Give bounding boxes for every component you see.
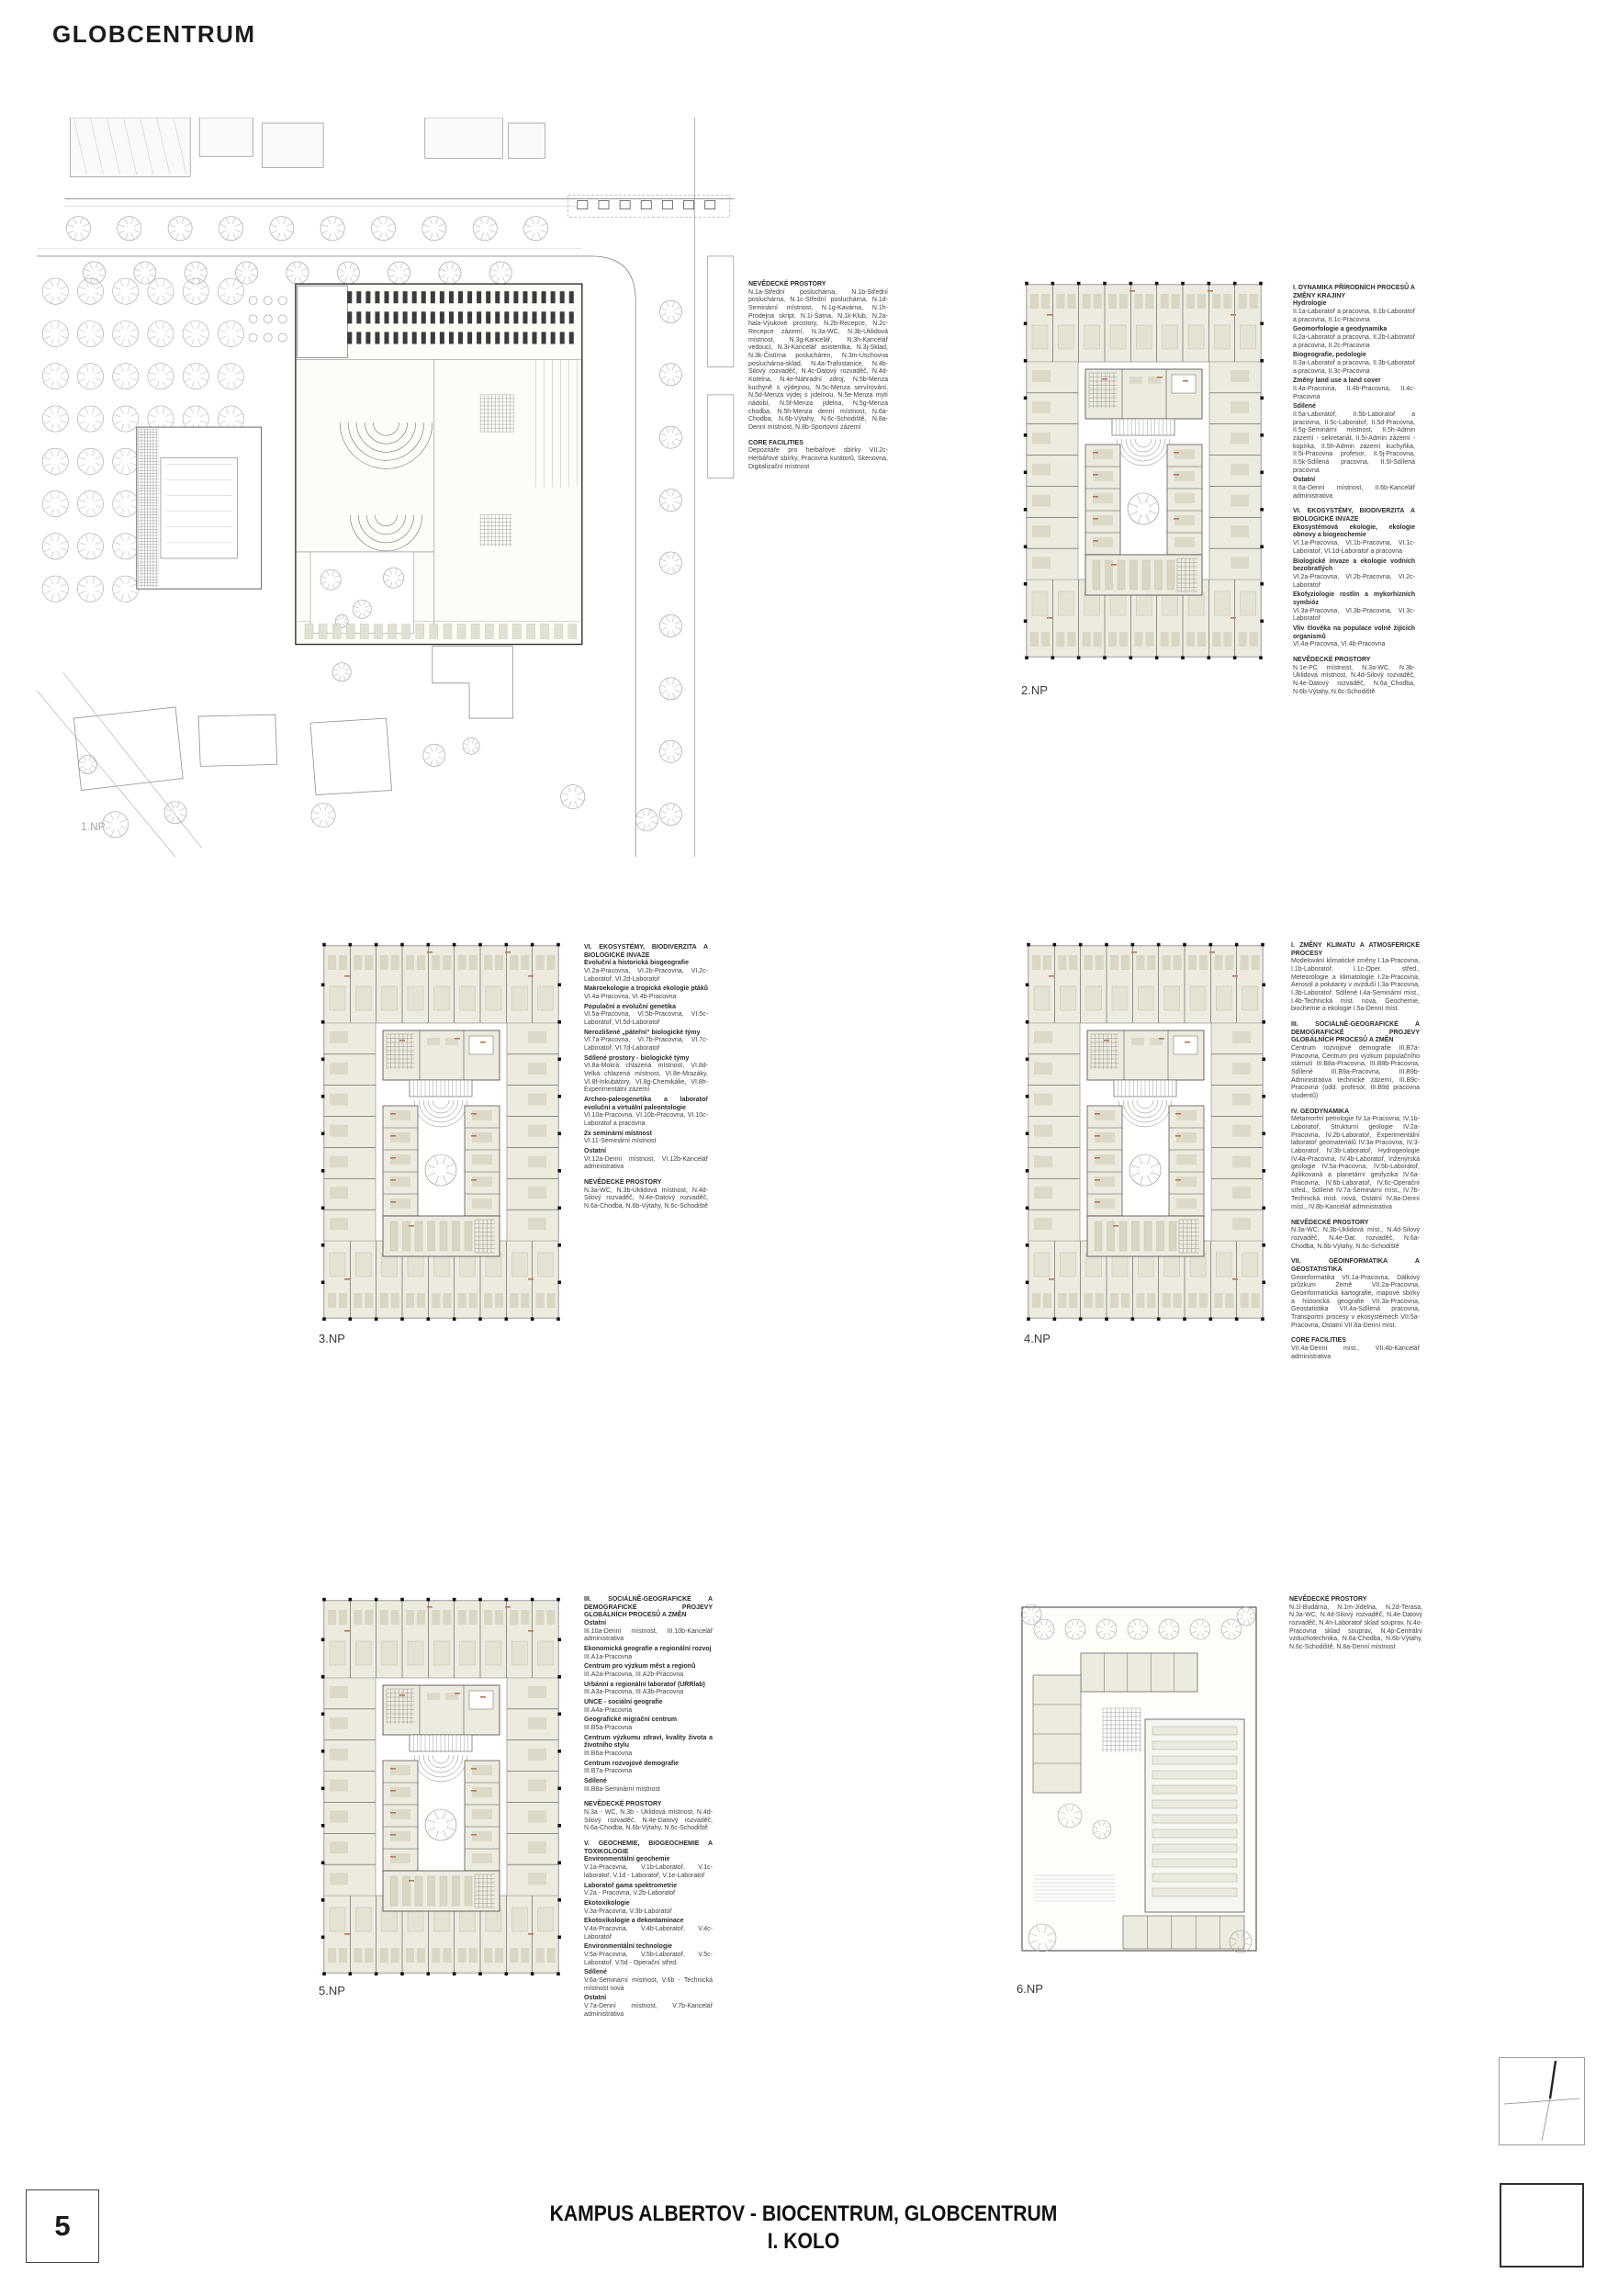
plan-label-6np: 6.NP — [1017, 1982, 1043, 1996]
annotation-body: VI.8a-Mokrá chlazená místnost, VI.8d-Vel… — [584, 1063, 708, 1095]
annotation-body: VI.2a-Pracovna, VI.2b-Pracovna, VI.2c-La… — [584, 968, 708, 984]
annotation-body: II.6a-Denní místnost, II.6b-Kancelář adm… — [1293, 485, 1415, 501]
annotation-body: N.3a-WC, N.3b-Úklidová místnost, N.4d-Si… — [584, 1187, 708, 1211]
sheet-title-line1: KAMPUS ALBERTOV - BIOCENTRUM, GLOBCENTRU… — [96, 2200, 1511, 2228]
annotation-subheading: Geografické migrační centrum — [584, 1716, 713, 1725]
annotation-section: V. GEOCHEMIE, BIOGEOCHEMIE A TOXIKOLOGIE… — [584, 1840, 713, 2019]
annotation-body: Geoinformatika VII.1a-Pracovna, Dálkový … — [1291, 1275, 1420, 1331]
annotation-heading: CORE FACILITIES — [1291, 1337, 1420, 1345]
annotation-1np: NEVĚDECKÉ PROSTORYN.1a-Střední posluchár… — [748, 281, 888, 473]
annotation-body: VI.4a-Pracovna, VI.4b-Pracovna — [584, 994, 708, 1002]
annotation-4np: I. ZMĚNY KLIMATU A ATMOSFÉRICKÉ PROCESYM… — [1291, 942, 1420, 1363]
annotation-heading: VI. EKOSYSTÉMY, BIODIVERZITA A BIOLOGICK… — [584, 944, 708, 960]
annotation-body: V.2a - Pracovna, V.2b-Laboratoř — [584, 1890, 713, 1898]
annotation-section: NEVĚDECKÉ PROSTORYN.3a-WC, N.3b-Úklidová… — [584, 1179, 708, 1211]
annotation-subheading: Centrum pro výzkum měst a regionů — [584, 1663, 713, 1671]
north-arrow-box — [1499, 2057, 1585, 2145]
annotation-body: II.4a-Pracovna, II.4b-Pracovna, II.4c-Pr… — [1293, 386, 1415, 401]
annotation-subheading: Hydrologie — [1293, 300, 1415, 309]
annotation-section: I. ZMĚNY KLIMATU A ATMOSFÉRICKÉ PROCESYM… — [1291, 942, 1420, 1014]
annotation-subheading: Ostatní — [584, 1620, 713, 1628]
annotation-subheading: Biogeografie, pedologie — [1293, 352, 1415, 360]
annotation-body: N.3a-WC, N.3b-Úklidová míst., N.4d-Silov… — [1291, 1227, 1420, 1251]
annotation-subheading: Ekofyziologie rostlin a mykorhizních sym… — [1293, 591, 1415, 607]
annotation-body: N.1l-Budárna, N.1m-Jídelna, N.2d-Terasa,… — [1289, 1604, 1422, 1652]
annotation-body: VI.4a-Pracovna, VI.4b-Pracovna — [1293, 641, 1415, 649]
annotation-heading: NEVĚDECKÉ PROSTORY — [1293, 657, 1415, 665]
plan-label-3np: 3.NP — [319, 1332, 345, 1345]
annotation-body: II.2a-Laboratoř a pracovna, II.2b-Labora… — [1293, 334, 1415, 350]
sheet-title-line2: I. KOLO — [96, 2228, 1511, 2256]
annotation-heading: NEVĚDECKÉ PROSTORY — [748, 281, 888, 289]
annotation-body: V.7a-Denní místnost, V.7b-Kancelář admin… — [584, 2003, 713, 2019]
annotation-subheading: Ekonomická geografie a regionální rozvoj — [584, 1646, 713, 1654]
annotation-heading: NEVĚDECKÉ PROSTORY — [584, 1801, 713, 1809]
plan-label-1np: 1.NP — [81, 820, 106, 833]
annotation-subheading: Laboratoř gama spektrometrie — [584, 1883, 713, 1891]
annotation-section: VI. EKOSYSTÉMY, BIODIVERZITA A BIOLOGICK… — [584, 944, 708, 1172]
annotation-body: III.B6a-Pracovna — [584, 1750, 713, 1759]
annotation-section: NEVĚDECKÉ PROSTORYN.3a-WC, N.3b-Úklidová… — [1291, 1220, 1420, 1252]
plan-label-5np: 5.NP — [319, 1984, 345, 1998]
annotation-body: VI.2a-Pracovna, VI.2b-Pracovna, VI.2c-La… — [1293, 574, 1415, 590]
annotation-body: Metamorfní petrologie IV.1a-Pracovna, IV… — [1291, 1116, 1420, 1211]
annotation-body: N.3a - WC, N.3b - Úklidová místnost, N.4… — [584, 1809, 713, 1833]
annotation-section: NEVĚDECKÉ PROSTORYN.3a - WC, N.3b - Úkli… — [584, 1801, 713, 1833]
annotation-body: N.1e-PC místnost, N.3a-WC, N.3b-Úklidová… — [1293, 665, 1415, 697]
annotation-subheading: Vliv člověka na populace volně žijících … — [1293, 625, 1415, 641]
annotation-body: V.5a-Pracovna, V.5b-Laboratoř, V.5c-Labo… — [584, 1952, 713, 1967]
annotation-subheading: UNCE - sociální geografie — [584, 1699, 713, 1707]
north-arrow-icon — [1500, 2058, 1582, 2143]
annotation-heading: III. SOCIÁLNĚ-GEOGRAFICKÉ A DEMOGRAFICKÉ… — [584, 1596, 713, 1620]
annotation-heading: VI. EKOSYSTÉMY, BIODIVERZITA A BIOLOGICK… — [1293, 508, 1415, 523]
annotation-body: VI.11-Seminární místnost — [584, 1138, 708, 1146]
annotation-2np: I. DYNAMIKA PŘÍRODNÍCH PROCESŮ A ZMĚNY K… — [1293, 285, 1415, 698]
annotation-heading: I. DYNAMIKA PŘÍRODNÍCH PROCESŮ A ZMĚNY K… — [1293, 285, 1415, 300]
annotation-subheading: Archeo-paleogenetika a laboratoř evolučn… — [584, 1097, 708, 1112]
annotation-subheading: Ostatní — [1293, 477, 1415, 485]
annotation-subheading: Sdílené — [1293, 403, 1415, 411]
annotation-body: III.10a-Denní místnost, III.10b-Kancelář… — [584, 1628, 713, 1644]
annotation-body: VI.7a-Pracovna, VI.7b-Pracovna, VI.7c-La… — [584, 1037, 708, 1052]
annotation-section: NEVĚDECKÉ PROSTORYN.1l-Budárna, N.1m-Jíd… — [1289, 1596, 1422, 1652]
annotation-body: III.A2a-Pracovna, III.A2b-Pracovna — [584, 1671, 713, 1680]
annotation-subheading: Biologické invaze a ekologie vodních bez… — [1293, 558, 1415, 574]
annotation-subheading: Ostatní — [584, 1995, 713, 2003]
annotation-subheading: Nerozlišené „páteřní“ biologické týmy — [584, 1030, 708, 1038]
annotation-section: CORE FACILITIESDepozitáře pro herbářové … — [748, 440, 888, 472]
annotation-body: VI.3a-Pracovna, VI.3b-Pracovna, VI.3c-La… — [1293, 608, 1415, 624]
floor-plan-5np — [317, 1593, 566, 1980]
annotation-subheading: Sdílené — [584, 1969, 713, 1977]
annotation-body: III.B5a-Pracovna — [584, 1725, 713, 1733]
annotation-subheading: Environmentální geochemie — [584, 1856, 713, 1864]
annotation-subheading: Makroekologie a tropická ekologie ptáků — [584, 985, 708, 994]
annotation-3np: VI. EKOSYSTÉMY, BIODIVERZITA A BIOLOGICK… — [584, 944, 708, 1213]
annotation-body: III.A4a-Pracovna — [584, 1707, 713, 1716]
floor-plan-4np — [1021, 939, 1270, 1325]
annotation-section: NEVĚDECKÉ PROSTORYN.1a-Střední posluchár… — [748, 281, 888, 433]
page-title: GLOBCENTRUM — [52, 20, 256, 49]
floor-plan-6np — [1015, 1600, 1264, 1958]
annotation-heading: V. GEOCHEMIE, BIOGEOCHEMIE A TOXIKOLOGIE — [584, 1840, 713, 1856]
annotation-section: IV. GEODYNAMIKAMetamorfní petrologie IV.… — [1291, 1109, 1420, 1212]
annotation-subheading: Centrum rozvojové demografie — [584, 1761, 713, 1769]
annotation-heading: VII. GEOINFORMATIKA A GEOSTATISTIKA — [1291, 1258, 1420, 1274]
annotation-body: II.5a-Laboratoř, II.5b-Laboratoř a praco… — [1293, 411, 1415, 475]
annotation-subheading: Změny land use a land cover — [1293, 377, 1415, 386]
annotation-body: III.A1a-Pracovna — [584, 1654, 713, 1662]
annotation-subheading: Urbánní a regionální laboratoř (URRlab) — [584, 1682, 713, 1690]
sheet-title: KAMPUS ALBERTOV - BIOCENTRUM, GLOBCENTRU… — [0, 2200, 1607, 2256]
annotation-subheading: Ostatní — [584, 1148, 708, 1156]
annotation-body: II.1a-Laboratoř a pracovna, II.1b-Labora… — [1293, 309, 1415, 324]
annotation-subheading: Ekotoxikologie a dekontaminace — [584, 1918, 713, 1926]
annotation-section: CORE FACILITIESVII.4a-Denní míst., VII.4… — [1291, 1337, 1420, 1361]
annotation-6np: NEVĚDECKÉ PROSTORYN.1l-Budárna, N.1m-Jíd… — [1289, 1596, 1422, 1654]
annotation-heading: IV. GEODYNAMIKA — [1291, 1109, 1420, 1117]
annotation-body: VI.5a-Pracovna, VI.5b-Pracovna, VI.5c-La… — [584, 1011, 708, 1027]
annotation-body: Centrum rozvojové demografie III.B7a-Pra… — [1291, 1045, 1420, 1101]
annotation-heading: NEVĚDECKÉ PROSTORY — [1291, 1220, 1420, 1228]
annotation-subheading: Sdílené prostory - biologické týmy — [584, 1055, 708, 1064]
annotation-subheading: Environmentální technologie — [584, 1943, 713, 1952]
annotation-section: VI. EKOSYSTÉMY, BIODIVERZITA A BIOLOGICK… — [1293, 508, 1415, 648]
annotation-heading: III. SOCIÁLNĚ-GEOGRAFICKÉ A DEMOGRAFICKÉ… — [1291, 1021, 1420, 1045]
annotation-body: V.4a-Pracovna, V.4b-Laboratoř, V.4c-Labo… — [584, 1926, 713, 1941]
logo-box — [1500, 2183, 1584, 2268]
annotation-heading: I. ZMĚNY KLIMATU A ATMOSFÉRICKÉ PROCESY — [1291, 942, 1420, 958]
annotation-body: VI.12a-Denní místnost, VI.12b-Kancelář a… — [584, 1156, 708, 1172]
site-plan-1np — [37, 118, 735, 857]
annotation-subheading: Ekotoxikologie — [584, 1900, 713, 1908]
annotation-body: VI.1a-Pracovna, VI.1b-Pracovna, VI.1c-La… — [1293, 540, 1415, 556]
competition-board-sheet: GLOBCENTRUM 1.NP NEVĚDECKÉ PROSTORYN.1a-… — [0, 0, 1607, 2296]
floor-plan-2np — [1019, 277, 1268, 664]
annotation-subheading: Evoluční a historická biogeografie — [584, 960, 708, 968]
annotation-section: I. DYNAMIKA PŘÍRODNÍCH PROCESŮ A ZMĚNY K… — [1293, 285, 1415, 501]
annotation-heading: CORE FACILITIES — [748, 440, 888, 448]
annotation-section: NEVĚDECKÉ PROSTORYN.1e-PC místnost, N.3a… — [1293, 657, 1415, 696]
annotation-subheading: Populační a evoluční genetika — [584, 1004, 708, 1012]
annotation-subheading: Geomorfologie a geodynamika — [1293, 326, 1415, 334]
annotation-body: VII.4a-Denní míst., VII.4b-Kancelář admi… — [1291, 1345, 1420, 1361]
annotation-body: Modelování klimatické změny I.1a-Pracovn… — [1291, 958, 1420, 1014]
annotation-body: III.A3a-Pracovna, III.A3b-Pracovna — [584, 1689, 713, 1697]
annotation-section: III. SOCIÁLNĚ-GEOGRAFICKÉ A DEMOGRAFICKÉ… — [584, 1596, 713, 1794]
annotation-body: Depozitáře pro herbářové sbírky VII.2c-H… — [748, 447, 888, 471]
annotation-body: N.1a-Střední posluchárna, N.1b-Střední p… — [748, 289, 888, 433]
annotation-subheading: Sdílené — [584, 1778, 713, 1786]
plan-label-4np: 4.NP — [1024, 1332, 1051, 1345]
annotation-body: V.6a-Seminární místnost, V.6b - Technick… — [584, 1977, 713, 1993]
annotation-5np: III. SOCIÁLNĚ-GEOGRAFICKÉ A DEMOGRAFICKÉ… — [584, 1596, 713, 2020]
annotation-body: III.B8a-Seminární místnost — [584, 1786, 713, 1795]
floor-plan-3np — [317, 939, 566, 1325]
annotation-body: III.B7a-Pracovna — [584, 1768, 713, 1776]
annotation-body: V.3a-Pracovna, V.3b-Laboratoř — [584, 1908, 713, 1917]
annotation-subheading: Centrum výzkumu zdraví, kvality života a… — [584, 1735, 713, 1750]
annotation-heading: NEVĚDECKÉ PROSTORY — [584, 1179, 708, 1187]
annotation-section: III. SOCIÁLNĚ-GEOGRAFICKÉ A DEMOGRAFICKÉ… — [1291, 1021, 1420, 1101]
plan-label-2np: 2.NP — [1021, 683, 1048, 697]
annotation-section: VII. GEOINFORMATIKA A GEOSTATISTIKAGeoin… — [1291, 1258, 1420, 1330]
annotation-body: II.3a-Laboratoř a pracovna, II.3b-Labora… — [1293, 360, 1415, 376]
annotation-body: VI.10a-Pracovna, VI.10b-Pracovna, VI.10c… — [584, 1112, 708, 1128]
annotation-subheading: Ekosystémová ekologie, ekologie obnovy a… — [1293, 524, 1415, 540]
annotation-body: V.1a-Pracovna, V.1b-Laboratoř, V.1c-labo… — [584, 1864, 713, 1880]
annotation-heading: NEVĚDECKÉ PROSTORY — [1289, 1596, 1422, 1604]
annotation-subheading: 2x seminární místnost — [584, 1131, 708, 1139]
